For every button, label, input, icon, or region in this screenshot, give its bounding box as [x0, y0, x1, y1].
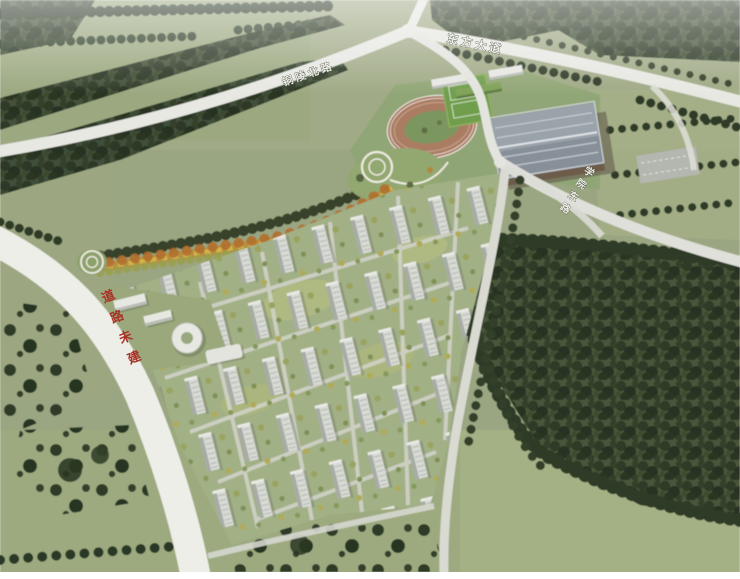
haze-overlay: [0, 0, 740, 95]
circular-plaza: [77, 249, 107, 275]
masterplan-scene: 铜陵北路 东方大道 学院东路 道路未建: [0, 0, 740, 579]
aerial-rendering-image: 铜陵北路 东方大道 学院东路 道路未建: [0, 0, 740, 579]
south-junction: [494, 156, 506, 168]
image-margin: [0, 572, 740, 579]
